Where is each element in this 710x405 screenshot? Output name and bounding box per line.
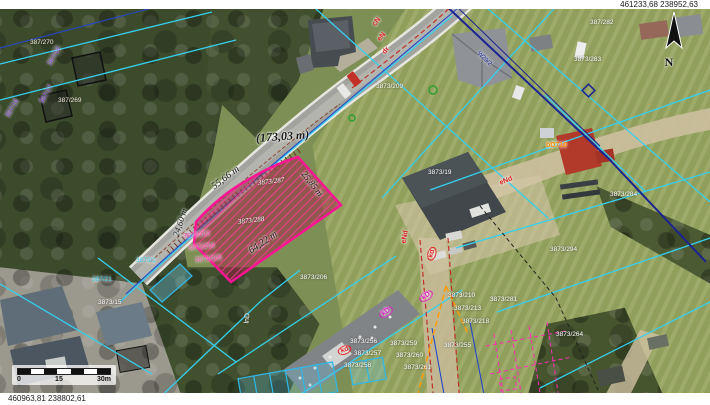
map-viewport[interactable]: (173,03 m)55,66 m25,85 m64,22 m24,60 m38…: [0, 0, 710, 405]
coords-top-right: 461233,68 238952,63: [620, 0, 698, 9]
north-label: N: [650, 55, 688, 70]
coords-bottom-left: 460963,81 238802,61: [8, 394, 86, 403]
selected-parcel-highlight: [194, 157, 341, 282]
scale-bar-segments: [17, 368, 111, 375]
scale-bar: 0 15 30m: [12, 365, 116, 385]
north-arrow-icon: [661, 12, 687, 54]
scale-label-mid: 15: [55, 376, 63, 383]
scale-label-start: 0: [17, 376, 21, 383]
north-arrow: N: [660, 12, 688, 70]
coordinate-readout-bottom: 460963,81 238802,61: [0, 393, 710, 405]
vector-overlay: [0, 0, 710, 405]
scale-label-end: 30m: [97, 376, 111, 383]
coordinate-readout-top: 461233,68 238952,63: [0, 0, 710, 9]
